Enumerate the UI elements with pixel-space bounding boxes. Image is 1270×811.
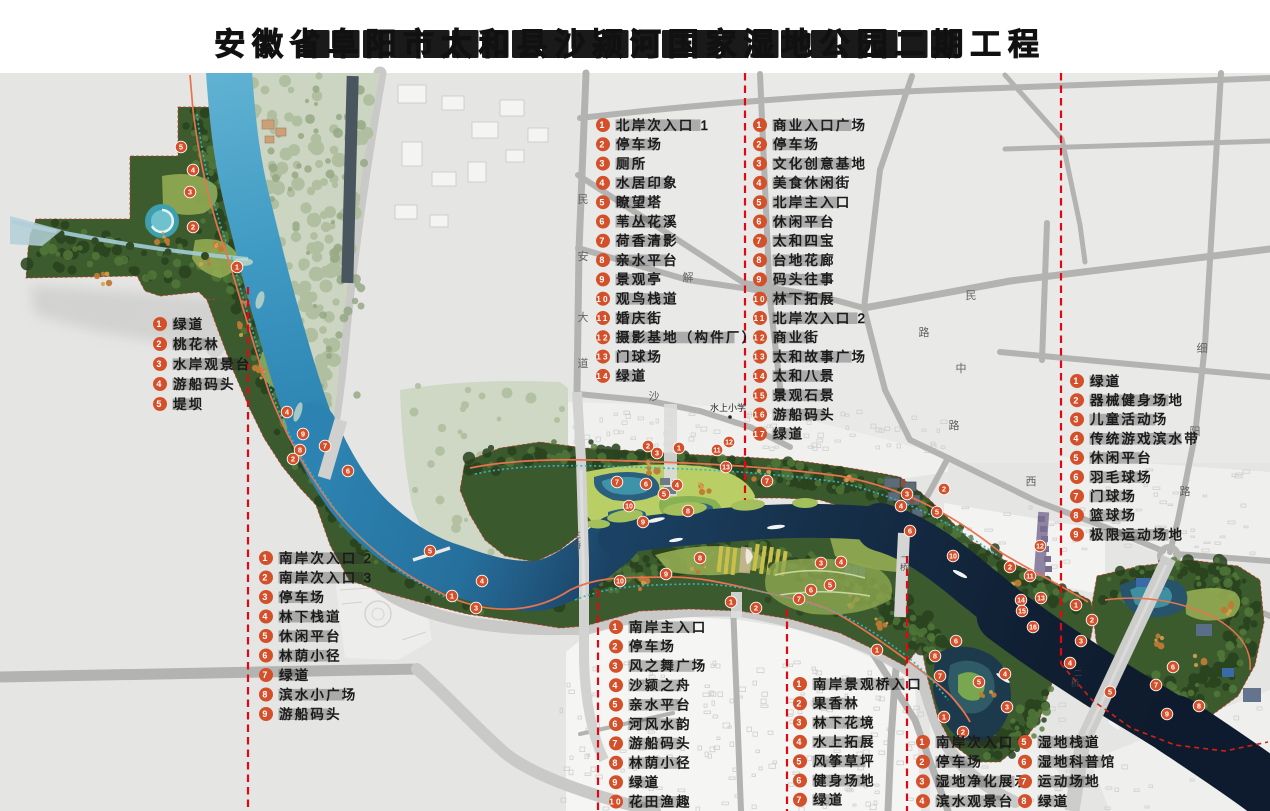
svg-text:8: 8 xyxy=(1197,702,1201,711)
svg-text:太和八景: 太和八景 xyxy=(773,369,836,384)
svg-text:1: 1 xyxy=(677,444,681,453)
svg-text:堤坝: 堤坝 xyxy=(173,397,204,412)
svg-text:14: 14 xyxy=(596,372,610,381)
svg-text:南岸次入口 3: 南岸次入口 3 xyxy=(279,570,373,585)
svg-text:12: 12 xyxy=(596,333,610,342)
svg-text:3: 3 xyxy=(156,359,163,369)
svg-text:3: 3 xyxy=(612,661,619,671)
svg-text:3: 3 xyxy=(1073,415,1080,425)
svg-text:绿道: 绿道 xyxy=(773,427,804,442)
svg-text:6: 6 xyxy=(796,776,803,786)
svg-text:观鸟栈道: 观鸟栈道 xyxy=(616,292,679,307)
svg-text:北岸主入口: 北岸主入口 xyxy=(773,195,852,210)
svg-text:中: 中 xyxy=(956,362,967,375)
svg-text:8: 8 xyxy=(612,758,619,768)
svg-text:1: 1 xyxy=(919,737,926,747)
svg-text:解: 解 xyxy=(683,270,694,284)
svg-text:10: 10 xyxy=(609,798,623,807)
svg-text:绿道: 绿道 xyxy=(1090,374,1121,389)
svg-text:风之舞广场: 风之舞广场 xyxy=(629,659,708,674)
svg-text:桥: 桥 xyxy=(573,540,581,550)
svg-text:一: 一 xyxy=(901,553,909,562)
svg-text:1: 1 xyxy=(756,120,763,130)
svg-text:10: 10 xyxy=(625,504,633,511)
svg-text:8: 8 xyxy=(756,255,763,265)
svg-text:1: 1 xyxy=(262,553,269,563)
svg-text:停车场: 停车场 xyxy=(629,638,676,654)
svg-text:5: 5 xyxy=(662,490,666,499)
svg-text:2: 2 xyxy=(612,642,619,652)
svg-text:安: 安 xyxy=(578,249,589,263)
svg-text:绿道: 绿道 xyxy=(1038,794,1069,809)
svg-text:3: 3 xyxy=(599,159,606,169)
svg-text:二: 二 xyxy=(1074,669,1082,678)
svg-text:4: 4 xyxy=(796,737,803,747)
svg-text:3: 3 xyxy=(919,777,926,787)
svg-text:1: 1 xyxy=(729,598,733,607)
svg-text:6: 6 xyxy=(809,586,813,595)
svg-text:林荫小径: 林荫小径 xyxy=(279,648,342,663)
svg-text:3: 3 xyxy=(819,559,823,568)
svg-text:6: 6 xyxy=(756,217,763,227)
svg-text:3: 3 xyxy=(188,188,192,197)
svg-text:2: 2 xyxy=(1090,616,1094,625)
svg-text:2: 2 xyxy=(1073,395,1080,405)
svg-text:9: 9 xyxy=(262,709,269,719)
svg-text:太和四宝: 太和四宝 xyxy=(773,234,836,249)
svg-text:5: 5 xyxy=(1073,453,1080,463)
svg-text:婚庆街: 婚庆街 xyxy=(616,311,663,326)
svg-text:11: 11 xyxy=(1026,574,1034,581)
svg-text:桃花林: 桃花林 xyxy=(173,337,220,352)
svg-text:苇丛花溪: 苇丛花溪 xyxy=(616,214,679,229)
svg-text:滨水小广场: 滨水小广场 xyxy=(279,687,358,702)
svg-text:12: 12 xyxy=(753,333,767,342)
svg-text:儿童活动场: 儿童活动场 xyxy=(1090,411,1169,427)
svg-text:5: 5 xyxy=(428,547,432,556)
svg-text:13: 13 xyxy=(753,353,767,362)
svg-text:2: 2 xyxy=(156,339,163,349)
svg-text:道: 道 xyxy=(578,356,589,370)
svg-text:文化创意基地: 文化创意基地 xyxy=(773,155,867,171)
svg-text:5: 5 xyxy=(179,143,183,152)
svg-text:西: 西 xyxy=(1026,476,1037,488)
svg-text:7: 7 xyxy=(756,236,763,246)
svg-text:停车场: 停车场 xyxy=(773,136,820,152)
svg-text:8: 8 xyxy=(599,255,606,265)
svg-text:花田渔趣: 花田渔趣 xyxy=(629,794,692,809)
svg-text:河风水韵: 河风水韵 xyxy=(629,717,692,732)
svg-text:羽毛球场: 羽毛球场 xyxy=(1090,470,1153,485)
svg-text:4: 4 xyxy=(1073,434,1080,444)
svg-text:林荫小径: 林荫小径 xyxy=(629,756,692,771)
svg-text:6: 6 xyxy=(954,637,958,646)
svg-text:1: 1 xyxy=(942,713,946,722)
svg-text:游船码头: 游船码头 xyxy=(629,736,692,751)
svg-text:民: 民 xyxy=(578,194,589,206)
svg-text:4: 4 xyxy=(919,796,926,806)
svg-text:7: 7 xyxy=(1154,681,1158,690)
svg-text:沙颍之舟: 沙颍之舟 xyxy=(629,678,692,693)
svg-text:2: 2 xyxy=(919,757,926,767)
svg-text:5: 5 xyxy=(935,508,939,517)
svg-text:7: 7 xyxy=(797,595,801,604)
svg-text:绿道: 绿道 xyxy=(173,317,204,332)
svg-text:绿道: 绿道 xyxy=(616,369,647,384)
svg-text:6: 6 xyxy=(644,480,648,489)
svg-text:果香林: 果香林 xyxy=(813,696,860,711)
svg-text:9: 9 xyxy=(756,275,763,285)
svg-text:码头往事: 码头往事 xyxy=(773,272,836,287)
svg-text:水岸观景台: 水岸观景台 xyxy=(173,357,252,372)
svg-text:7: 7 xyxy=(612,739,619,749)
svg-text:16: 16 xyxy=(1029,625,1037,632)
svg-text:2: 2 xyxy=(754,604,758,613)
svg-text:3: 3 xyxy=(655,449,659,458)
svg-text:5: 5 xyxy=(599,197,606,207)
svg-text:5: 5 xyxy=(828,581,832,590)
svg-text:10: 10 xyxy=(616,579,624,586)
svg-text:绿道: 绿道 xyxy=(813,793,844,808)
svg-text:商业入口广场: 商业入口广场 xyxy=(773,118,867,133)
svg-text:3: 3 xyxy=(905,490,909,499)
svg-text:荷香清影: 荷香清影 xyxy=(616,234,679,249)
svg-text:8: 8 xyxy=(1021,796,1028,806)
svg-text:5: 5 xyxy=(262,631,269,641)
svg-text:5: 5 xyxy=(1021,737,1028,747)
svg-text:桥: 桥 xyxy=(1071,678,1079,688)
svg-text:水上小学: 水上小学 xyxy=(710,402,746,413)
svg-text:风筝草坪: 风筝草坪 xyxy=(813,753,876,769)
svg-text:2: 2 xyxy=(191,223,195,232)
svg-text:台地花廊: 台地花廊 xyxy=(773,252,836,268)
svg-text:厕所: 厕所 xyxy=(616,156,647,171)
svg-text:景观石景: 景观石景 xyxy=(773,388,836,403)
svg-text:沙: 沙 xyxy=(649,390,660,403)
svg-text:8: 8 xyxy=(933,652,937,661)
svg-text:9: 9 xyxy=(641,518,645,527)
svg-text:南岸次入口 1: 南岸次入口 1 xyxy=(936,735,1030,750)
svg-text:4: 4 xyxy=(756,178,763,188)
svg-text:6: 6 xyxy=(599,217,606,227)
svg-text:3: 3 xyxy=(756,159,763,169)
svg-text:9: 9 xyxy=(301,430,305,439)
svg-text:湿地净化展示: 湿地净化展示 xyxy=(936,774,1030,789)
svg-text:3: 3 xyxy=(1005,703,1009,712)
svg-text:12: 12 xyxy=(1036,544,1044,551)
svg-text:1: 1 xyxy=(450,592,454,601)
svg-text:健身场地: 健身场地 xyxy=(813,773,876,788)
svg-text:9: 9 xyxy=(1165,710,1169,719)
svg-text:6: 6 xyxy=(262,651,269,661)
svg-text:7: 7 xyxy=(262,670,269,680)
svg-text:2: 2 xyxy=(262,573,269,583)
svg-text:绿道: 绿道 xyxy=(279,668,310,683)
svg-text:7: 7 xyxy=(1021,777,1028,787)
svg-text:南岸次入口 2: 南岸次入口 2 xyxy=(279,551,373,566)
svg-text:1: 1 xyxy=(796,679,803,689)
svg-text:游船码头: 游船码头 xyxy=(773,407,836,422)
svg-text:太和故事广场: 太和故事广场 xyxy=(773,349,867,364)
svg-text:滨水观景台: 滨水观景台 xyxy=(936,794,1015,809)
svg-text:11: 11 xyxy=(596,314,609,323)
svg-text:门球场: 门球场 xyxy=(1090,489,1137,504)
svg-text:8: 8 xyxy=(298,446,302,455)
svg-text:2: 2 xyxy=(796,698,803,708)
svg-text:8: 8 xyxy=(262,690,269,700)
svg-text:7: 7 xyxy=(796,795,803,805)
svg-text:9: 9 xyxy=(599,275,606,285)
svg-text:湿地栈道: 湿地栈道 xyxy=(1038,735,1101,750)
svg-text:亲水平台: 亲水平台 xyxy=(616,253,679,268)
svg-text:水上拓展: 水上拓展 xyxy=(813,735,876,750)
svg-text:14: 14 xyxy=(753,372,767,381)
svg-text:休闲平台: 休闲平台 xyxy=(773,214,836,229)
svg-text:2: 2 xyxy=(942,485,946,494)
svg-text:水居印象: 水居印象 xyxy=(616,176,679,191)
svg-text:林下栈道: 林下栈道 xyxy=(279,609,342,624)
svg-text:停车场: 停车场 xyxy=(616,136,663,152)
svg-text:6: 6 xyxy=(1021,757,1028,767)
svg-text:安徽省阜阳市太和县沙颍河国家湿地公园二期工程: 安徽省阜阳市太和县沙颍河国家湿地公园二期工程 xyxy=(214,27,1046,62)
svg-text:8: 8 xyxy=(686,507,690,516)
svg-text:北岸次入口 1: 北岸次入口 1 xyxy=(616,118,710,133)
svg-text:11: 11 xyxy=(713,448,721,455)
svg-text:南岸主入口: 南岸主入口 xyxy=(629,620,708,635)
svg-text:1: 1 xyxy=(1073,376,1080,386)
svg-text:摄影基地（构件厂）: 摄影基地（构件厂） xyxy=(616,329,757,345)
svg-text:细: 细 xyxy=(1197,342,1208,355)
svg-text:1: 1 xyxy=(1074,601,1078,610)
svg-text:美食休闲街: 美食休闲街 xyxy=(773,175,852,191)
svg-text:13: 13 xyxy=(596,353,610,362)
svg-text:湿地科普馆: 湿地科普馆 xyxy=(1038,755,1117,770)
svg-text:16: 16 xyxy=(753,411,767,420)
svg-text:6: 6 xyxy=(908,527,912,536)
svg-text:2: 2 xyxy=(646,442,650,451)
svg-text:1: 1 xyxy=(599,120,606,130)
svg-text:休闲平台: 休闲平台 xyxy=(279,629,342,644)
svg-text:3: 3 xyxy=(1079,637,1083,646)
svg-text:6: 6 xyxy=(346,467,350,476)
svg-text:运动场地: 运动场地 xyxy=(1038,774,1101,789)
svg-text:亲水平台: 亲水平台 xyxy=(629,697,692,712)
svg-text:7: 7 xyxy=(323,442,327,451)
svg-text:10: 10 xyxy=(949,554,957,561)
svg-text:大: 大 xyxy=(578,310,589,324)
svg-text:7: 7 xyxy=(938,672,942,681)
svg-text:7: 7 xyxy=(765,477,769,486)
svg-text:10: 10 xyxy=(753,295,767,304)
svg-text:10: 10 xyxy=(596,295,610,304)
svg-text:绿道: 绿道 xyxy=(629,775,660,790)
svg-text:15: 15 xyxy=(1018,609,1026,616)
svg-text:休闲平台: 休闲平台 xyxy=(1090,451,1153,466)
svg-text:桥: 桥 xyxy=(900,562,908,572)
svg-text:5: 5 xyxy=(796,756,803,766)
svg-text:传统游戏滨水带: 传统游戏滨水带 xyxy=(1090,431,1200,446)
svg-text:13: 13 xyxy=(722,465,730,472)
svg-text:3: 3 xyxy=(796,718,803,728)
svg-text:1: 1 xyxy=(235,263,239,272)
svg-text:路: 路 xyxy=(1180,485,1191,498)
svg-text:5: 5 xyxy=(977,678,981,687)
svg-text:9: 9 xyxy=(1073,530,1080,540)
svg-text:7: 7 xyxy=(1073,491,1080,501)
svg-text:8: 8 xyxy=(698,554,702,563)
svg-text:三: 三 xyxy=(573,531,581,540)
svg-text:篮球场: 篮球场 xyxy=(1090,508,1137,523)
svg-text:停车场: 停车场 xyxy=(279,589,326,605)
svg-text:6: 6 xyxy=(612,719,619,729)
svg-text:民: 民 xyxy=(966,290,977,302)
svg-text:7: 7 xyxy=(615,478,619,487)
svg-text:4: 4 xyxy=(612,680,619,690)
svg-text:4: 4 xyxy=(262,612,269,622)
svg-text:器械健身场地: 器械健身场地 xyxy=(1090,393,1184,408)
svg-text:林下拓展: 林下拓展 xyxy=(773,292,836,307)
svg-text:景观亭: 景观亭 xyxy=(616,271,663,287)
svg-text:2: 2 xyxy=(291,455,295,464)
svg-text:6: 6 xyxy=(1073,472,1080,482)
svg-text:瞭望塔: 瞭望塔 xyxy=(616,195,663,210)
svg-text:路: 路 xyxy=(919,326,930,339)
svg-text:极限运动场地: 极限运动场地 xyxy=(1090,527,1184,542)
svg-text:商业街: 商业街 xyxy=(773,330,820,345)
svg-text:5: 5 xyxy=(756,197,763,207)
svg-text:1: 1 xyxy=(156,319,163,329)
svg-text:7: 7 xyxy=(599,236,606,246)
svg-text:1: 1 xyxy=(875,646,879,655)
svg-text:12: 12 xyxy=(725,440,733,447)
svg-text:2: 2 xyxy=(1008,563,1012,572)
svg-text:5: 5 xyxy=(156,399,163,409)
svg-text:2: 2 xyxy=(599,139,606,149)
svg-text:游船码头: 游船码头 xyxy=(279,707,342,722)
svg-text:游船码头: 游船码头 xyxy=(173,377,236,392)
svg-text:5: 5 xyxy=(1108,688,1112,697)
svg-text:南岸景观桥入口: 南岸景观桥入口 xyxy=(813,677,923,692)
svg-text:停车场: 停车场 xyxy=(936,754,983,770)
svg-text:4: 4 xyxy=(156,379,163,389)
svg-text:14: 14 xyxy=(1017,598,1025,605)
svg-text:6: 6 xyxy=(1171,663,1175,672)
svg-text:路: 路 xyxy=(949,419,960,432)
svg-text:13: 13 xyxy=(1037,596,1045,603)
svg-text:3: 3 xyxy=(474,604,478,613)
svg-text:门球场: 门球场 xyxy=(616,349,663,364)
svg-text:2: 2 xyxy=(756,139,763,149)
svg-text:11: 11 xyxy=(753,314,766,323)
svg-text:4: 4 xyxy=(599,178,606,188)
svg-text:9: 9 xyxy=(664,570,668,579)
svg-text:15: 15 xyxy=(753,391,767,400)
svg-text:北岸次入口 2: 北岸次入口 2 xyxy=(773,311,867,326)
svg-text:8: 8 xyxy=(1073,511,1080,521)
svg-text:3: 3 xyxy=(262,592,269,602)
svg-text:林下花境: 林下花境 xyxy=(813,715,876,730)
svg-text:5: 5 xyxy=(612,700,619,710)
svg-text:9: 9 xyxy=(612,777,619,787)
svg-text:17: 17 xyxy=(753,430,767,439)
svg-text:1: 1 xyxy=(612,622,619,632)
